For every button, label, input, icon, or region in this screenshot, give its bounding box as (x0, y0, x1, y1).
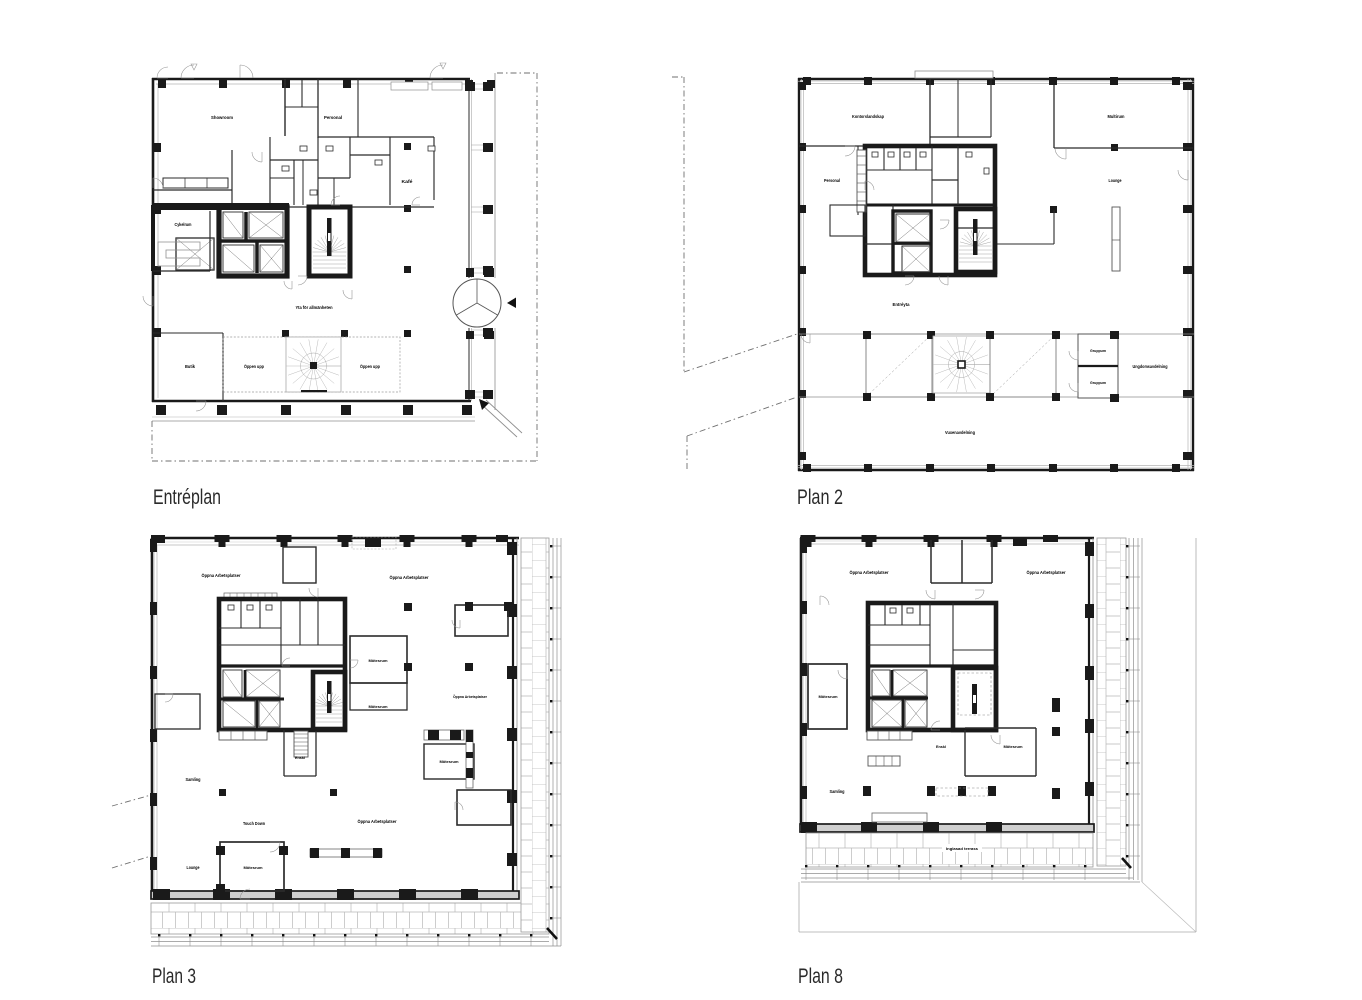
svg-text:Kontorslandskap: Kontorslandskap (852, 114, 884, 119)
svg-text:Samling: Samling (830, 789, 845, 794)
svg-text:Plan 3: Plan 3 (152, 965, 196, 988)
svg-text:Plan 8: Plan 8 (798, 965, 843, 988)
svg-text:Vuxenavdelning: Vuxenavdelning (945, 430, 975, 435)
svg-text:Ungdomsavdelning: Ungdomsavdelning (1133, 364, 1168, 369)
svg-text:Personal: Personal (324, 115, 342, 120)
svg-text:Mötesrum: Mötesrum (440, 759, 459, 764)
svg-text:Yta för allmänheten: Yta för allmänheten (296, 305, 333, 310)
svg-text:Showroom: Showroom (211, 115, 233, 120)
svg-text:Kafé: Kafé (402, 179, 414, 184)
svg-text:Mötesrum: Mötesrum (369, 704, 388, 709)
svg-text:Mötesrum: Mötesrum (244, 865, 263, 870)
svg-text:Öppna Arbetsplatser: Öppna Arbetsplatser (202, 573, 241, 578)
svg-text:Öppna Arbetsplatser: Öppna Arbetsplatser (850, 570, 889, 575)
svg-text:Lounge: Lounge (187, 865, 201, 870)
svg-text:Plan 2: Plan 2 (797, 486, 843, 509)
svg-text:Entréplan: Entréplan (153, 486, 221, 509)
svg-text:Personal: Personal (824, 178, 840, 183)
svg-text:Inglasad terrass: Inglasad terrass (946, 846, 979, 851)
svg-text:Entréyta: Entréyta (893, 302, 911, 307)
svg-text:Öppen upp: Öppen upp (244, 364, 264, 369)
svg-text:Öppna Arbetsplatser: Öppna Arbetsplatser (1027, 570, 1066, 575)
svg-text:Samling: Samling (186, 777, 201, 782)
svg-text:Cykelrum: Cykelrum (175, 222, 192, 227)
svg-text:Multirum: Multirum (1108, 114, 1125, 119)
svg-text:Enskl: Enskl (295, 755, 305, 760)
svg-text:Öppna Arbetsplatser: Öppna Arbetsplatser (358, 819, 397, 824)
svg-text:Mötesrum: Mötesrum (819, 694, 838, 699)
svg-text:Öppen upp: Öppen upp (360, 364, 380, 369)
svg-text:Öppna Arbetsplatser: Öppna Arbetsplatser (453, 694, 487, 699)
svg-text:Touch Down: Touch Down (243, 821, 265, 826)
svg-text:Lounge: Lounge (1109, 178, 1123, 183)
svg-text:Enskl: Enskl (936, 744, 946, 749)
svg-text:Butik: Butik (185, 364, 196, 369)
svg-text:Öppna Arbetsplatser: Öppna Arbetsplatser (390, 575, 429, 580)
svg-text:Gruppum: Gruppum (1090, 380, 1106, 385)
svg-text:Gruppum: Gruppum (1090, 348, 1106, 353)
svg-text:Mötesrum: Mötesrum (369, 658, 388, 663)
svg-text:Mötesrum: Mötesrum (1004, 744, 1023, 749)
